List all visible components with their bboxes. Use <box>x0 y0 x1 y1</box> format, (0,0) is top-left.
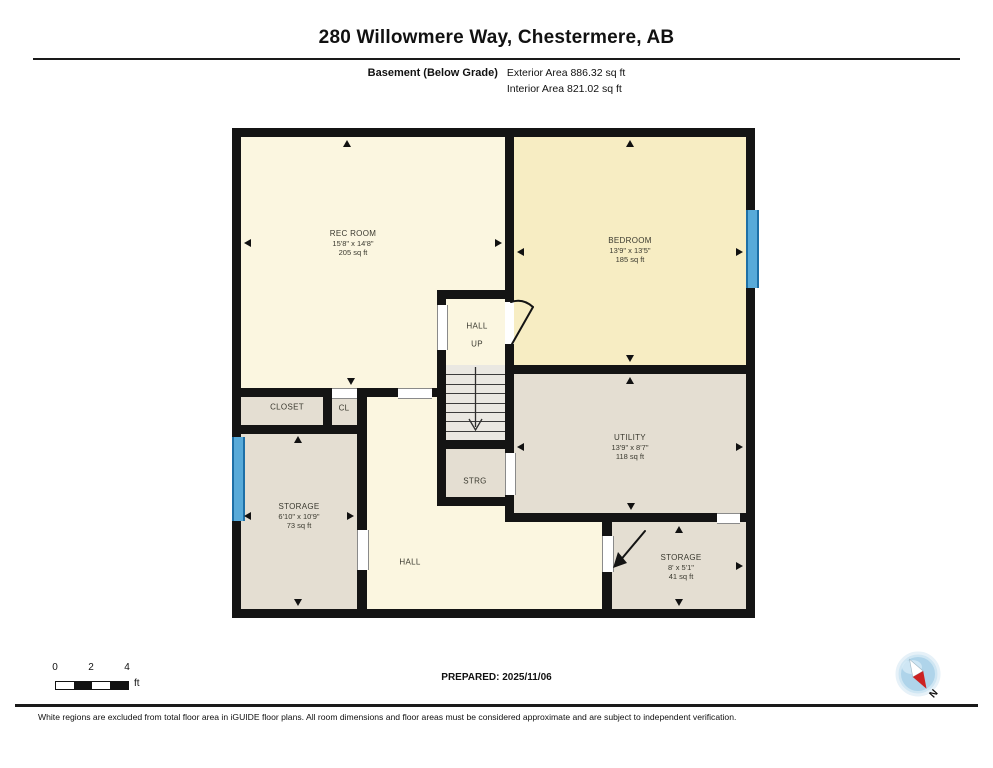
wall <box>232 609 755 618</box>
stair-tread <box>446 431 505 432</box>
wall <box>232 128 755 137</box>
wall <box>505 137 514 302</box>
room-label: STORAGE8' x 5'1"41 sq ft <box>660 553 701 582</box>
wall <box>437 497 514 506</box>
measure-arrow-right <box>495 239 502 247</box>
wall <box>357 388 367 618</box>
measure-arrow-up <box>675 526 683 533</box>
measure-arrow-left <box>244 512 251 520</box>
measure-arrow-down <box>627 503 635 510</box>
wall-opening <box>357 530 369 570</box>
room-name: STRG <box>463 476 486 486</box>
measure-arrow-up <box>626 140 634 147</box>
room-label: HALL <box>466 321 487 331</box>
room-dimension: 8' x 5'1" <box>660 562 701 572</box>
measure-arrow-left <box>244 239 251 247</box>
room-area <box>446 449 505 497</box>
room-dimension: 73 sq ft <box>278 521 319 531</box>
room-name: REC ROOM <box>330 229 376 239</box>
scale-segment <box>74 682 92 689</box>
wall <box>505 365 746 374</box>
stair-tread <box>446 393 505 394</box>
room-name: STORAGE <box>278 502 319 512</box>
wall <box>602 572 612 609</box>
wall <box>232 128 241 618</box>
room-label: BEDROOM13'9" x 13'5"185 sq ft <box>608 236 651 265</box>
wall <box>740 513 746 522</box>
room-label: UTILITY13'9" x 8'7"118 sq ft <box>612 433 649 462</box>
wall-opening <box>717 513 740 524</box>
wall-opening <box>332 388 357 399</box>
room-dimension: 13'9" x 13'5" <box>608 245 651 255</box>
footer-rule <box>15 704 978 707</box>
stair-tread <box>446 384 505 385</box>
wall <box>437 290 514 299</box>
room-name: UP <box>471 339 483 349</box>
room-label: STRG <box>463 476 486 486</box>
measure-arrow-up <box>626 377 634 384</box>
measure-arrow-down <box>675 599 683 606</box>
disclaimer-text: White regions are excluded from total fl… <box>38 712 736 722</box>
scale-segment <box>92 682 110 689</box>
room-label: CLOSET <box>270 402 304 412</box>
window <box>746 210 759 288</box>
compass-north-label: N <box>928 688 941 701</box>
wall <box>432 388 446 397</box>
wall-opening <box>505 453 516 495</box>
room-name: UTILITY <box>612 433 649 443</box>
measure-arrow-right <box>736 443 743 451</box>
room-area <box>437 506 514 609</box>
room-dimension: 205 sq ft <box>330 248 376 258</box>
room-dimension: 13'9" x 8'7" <box>612 442 649 452</box>
scale-segment <box>56 682 74 689</box>
wall <box>505 513 717 522</box>
scale-segment <box>110 682 128 689</box>
room-area <box>446 299 505 365</box>
stair-tread <box>446 412 505 413</box>
measure-arrow-up <box>294 436 302 443</box>
room-name: HALL <box>466 321 487 331</box>
room-label: HALL <box>399 557 420 567</box>
floorplan-page: 280 Willowmere Way, Chestermere, AB Base… <box>0 0 993 768</box>
room-name: HALL <box>399 557 420 567</box>
wall <box>437 440 514 449</box>
wall <box>746 128 755 618</box>
room-area <box>367 397 437 609</box>
room-name: STORAGE <box>660 553 701 563</box>
room-dimension: 6'10" x 10'9" <box>278 511 319 521</box>
measure-arrow-left <box>517 443 524 451</box>
floorplan-drawing: REC ROOM15'8" x 14'8"205 sq ftBEDROOM13'… <box>0 0 993 768</box>
wall <box>602 522 612 536</box>
room-label: STORAGE6'10" x 10'9"73 sq ft <box>278 502 319 531</box>
wall-opening <box>398 388 432 399</box>
room-dimension: 15'8" x 14'8" <box>330 238 376 248</box>
room-name: CLOSET <box>270 402 304 412</box>
room-name: CL <box>339 403 350 413</box>
room-label: REC ROOM15'8" x 14'8"205 sq ft <box>330 229 376 258</box>
stair-tread <box>446 374 505 375</box>
room-dimension: 41 sq ft <box>660 572 701 582</box>
room-name: BEDROOM <box>608 236 651 246</box>
measure-arrow-left <box>517 248 524 256</box>
measure-arrow-down <box>626 355 634 362</box>
compass-icon: N <box>891 648 947 706</box>
room-area <box>514 522 602 609</box>
measure-arrow-down <box>294 599 302 606</box>
wall <box>241 388 398 397</box>
room-dimension: 185 sq ft <box>608 255 651 265</box>
measure-arrow-right <box>736 562 743 570</box>
measure-arrow-up <box>343 140 351 147</box>
stair-tread <box>446 403 505 404</box>
wall-opening <box>602 536 614 572</box>
measure-arrow-right <box>347 512 354 520</box>
prepared-date: PREPARED: 2025/11/06 <box>0 672 993 683</box>
window <box>232 437 245 521</box>
wall <box>505 344 514 449</box>
room-label: CL <box>339 403 350 413</box>
wall <box>241 425 367 434</box>
room-dimension: 118 sq ft <box>612 452 649 462</box>
measure-arrow-down <box>347 378 355 385</box>
stair-tread <box>446 421 505 422</box>
measure-arrow-right <box>736 248 743 256</box>
wall-opening <box>437 305 448 350</box>
room-label: UP <box>471 339 483 349</box>
